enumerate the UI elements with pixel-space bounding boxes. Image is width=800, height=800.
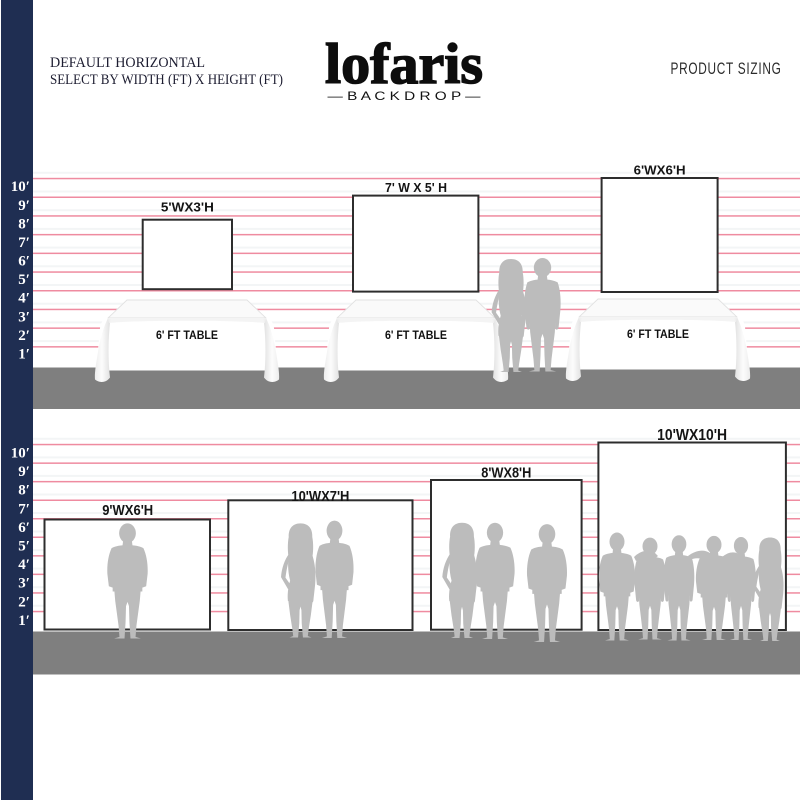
svg-text:5'WX3'H: 5'WX3'H: [161, 201, 214, 215]
svg-text:7′: 7′: [18, 501, 30, 517]
svg-text:10'WX7'H: 10'WX7'H: [291, 489, 349, 505]
svg-text:10'WX10'H: 10'WX10'H: [657, 427, 727, 444]
svg-text:8'WX8'H: 8'WX8'H: [481, 466, 531, 482]
svg-text:6' FT TABLE: 6' FT TABLE: [156, 328, 218, 342]
svg-text:1′: 1′: [18, 346, 30, 362]
svg-text:10′: 10′: [11, 179, 30, 195]
svg-text:PRODUCT SIZING: PRODUCT SIZING: [671, 60, 782, 78]
svg-text:9'WX6'H: 9'WX6'H: [102, 503, 153, 519]
svg-text:5′: 5′: [18, 539, 30, 555]
svg-text:6' FT TABLE: 6' FT TABLE: [385, 328, 447, 342]
svg-text:6' FT TABLE: 6' FT TABLE: [627, 327, 689, 341]
svg-text:6'WX6'H: 6'WX6'H: [634, 163, 686, 178]
svg-text:9′: 9′: [18, 464, 30, 480]
svg-text:6′: 6′: [18, 520, 30, 536]
svg-text:— B A C K D R O P —: — B A C K D R O P —: [328, 89, 481, 103]
svg-text:6′: 6′: [18, 254, 30, 270]
svg-text:DEFAULT HORIZONTAL: DEFAULT HORIZONTAL: [50, 55, 205, 71]
svg-text:5′: 5′: [18, 272, 30, 288]
svg-text:10′: 10′: [11, 446, 30, 462]
svg-text:3′: 3′: [18, 576, 30, 592]
svg-text:7′: 7′: [18, 235, 30, 251]
svg-text:1′: 1′: [18, 613, 30, 629]
svg-text:4′: 4′: [18, 557, 30, 573]
svg-text:7' W X 5' H: 7' W X 5' H: [385, 180, 447, 195]
svg-text:8′: 8′: [18, 483, 30, 499]
svg-text:SELECT BY WIDTH (FT) X HEIGHT: SELECT BY WIDTH (FT) X HEIGHT (FT): [50, 72, 283, 88]
svg-text:lofaris: lofaris: [325, 33, 483, 96]
svg-text:8′: 8′: [18, 216, 30, 232]
svg-text:4′: 4′: [18, 291, 30, 307]
svg-text:3′: 3′: [18, 309, 30, 325]
svg-text:2′: 2′: [18, 328, 30, 344]
svg-text:2′: 2′: [18, 594, 30, 610]
svg-text:9′: 9′: [18, 198, 30, 214]
